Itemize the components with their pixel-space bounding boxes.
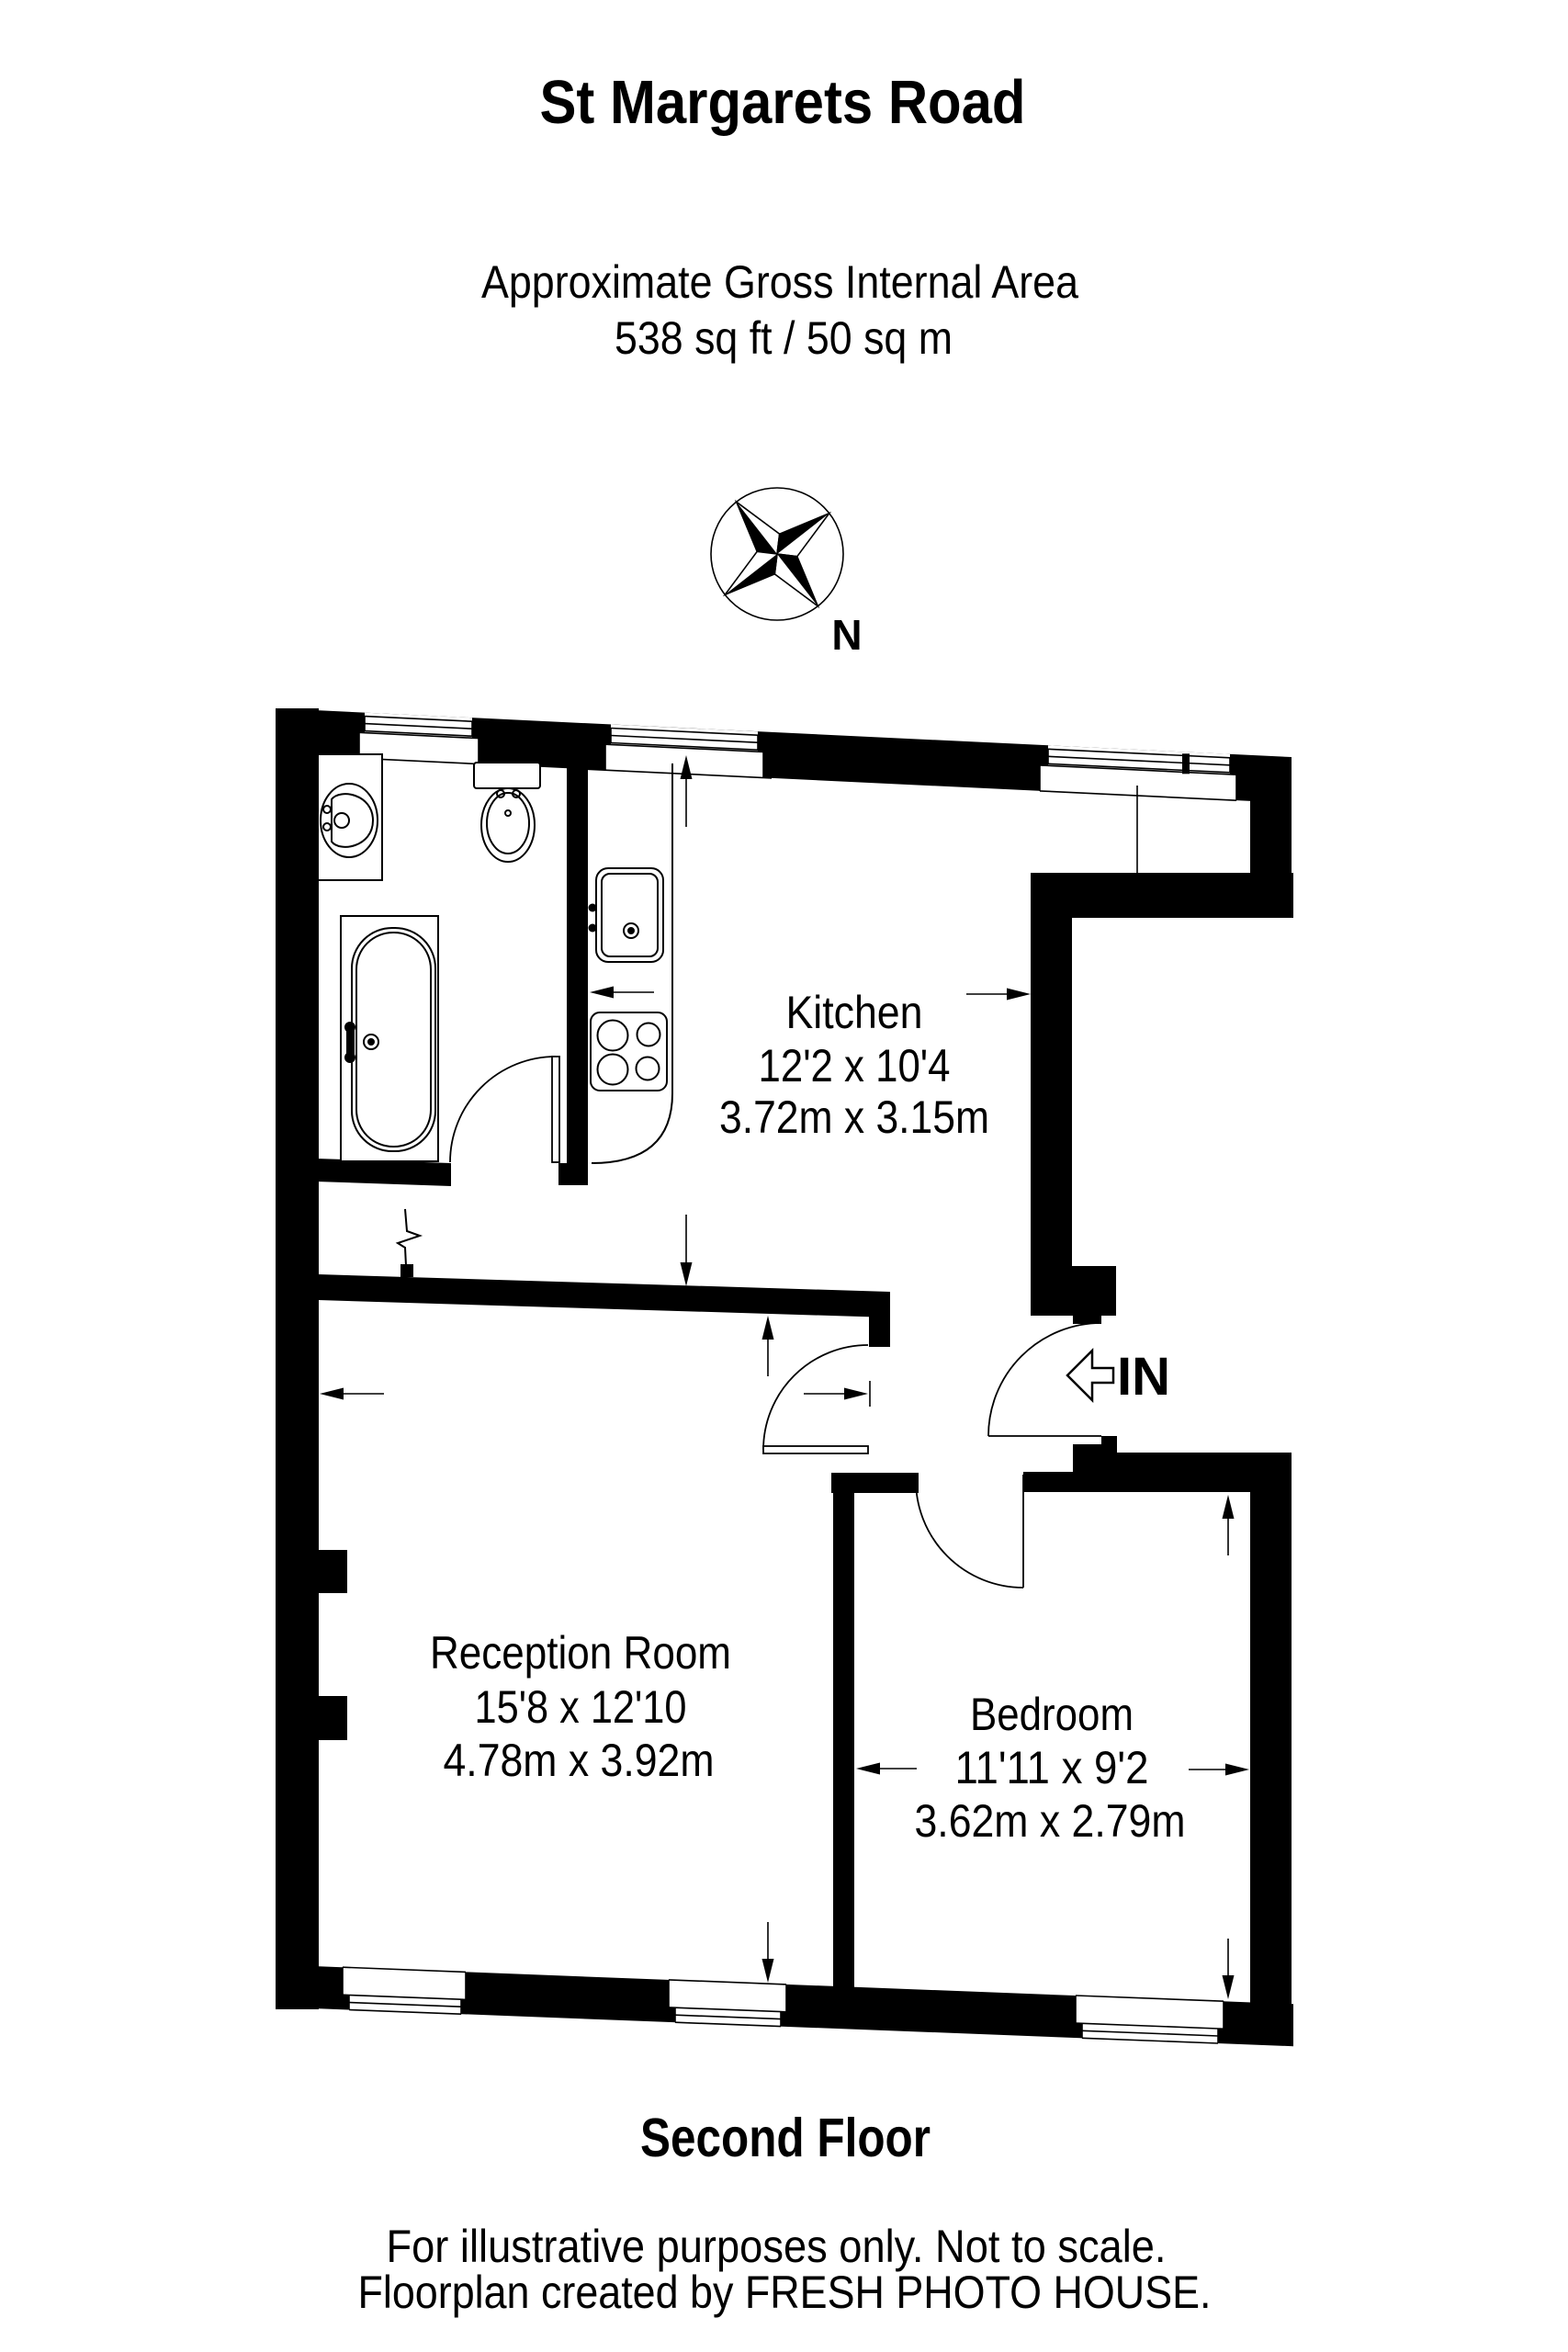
svg-text:Floorplan created by FRESH PHO: Floorplan created by FRESH PHOTO HOUSE. [358,2267,1212,2318]
svg-text:IN: IN [1117,1347,1170,1407]
svg-text:12'2 x 10'4: 12'2 x 10'4 [759,1040,951,1091]
svg-text:St Margarets Road: St Margarets Road [540,68,1026,137]
svg-text:Reception Room: Reception Room [430,1627,731,1679]
svg-text:Bedroom: Bedroom [970,1689,1134,1740]
svg-text:N: N [831,611,862,659]
svg-text:For illustrative purposes only: For illustrative purposes only. Not to s… [387,2221,1167,2272]
svg-text:3.72m x 3.15m: 3.72m x 3.15m [719,1091,989,1143]
svg-text:Approximate Gross Internal Are: Approximate Gross Internal Area [481,256,1078,308]
svg-text:11'11 x 9'2: 11'11 x 9'2 [955,1742,1149,1793]
svg-text:4.78m x 3.92m: 4.78m x 3.92m [444,1735,715,1786]
svg-text:538 sq ft / 50 sq m: 538 sq ft / 50 sq m [615,312,953,364]
svg-text:Second Floor: Second Floor [640,2108,931,2168]
svg-text:3.62m x 2.79m: 3.62m x 2.79m [915,1795,1186,1847]
svg-text:Kitchen: Kitchen [786,987,923,1038]
svg-text:15'8 x 12'10: 15'8 x 12'10 [475,1681,687,1733]
